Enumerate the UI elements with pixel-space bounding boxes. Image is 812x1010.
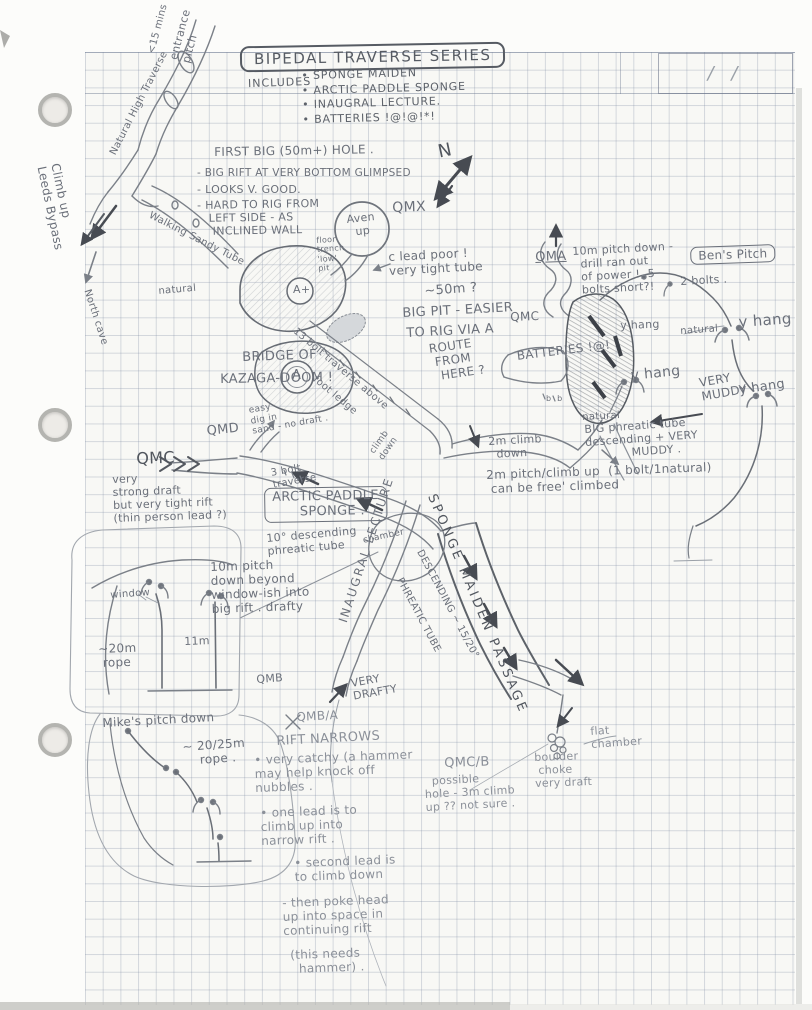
annotation-natural-right-1: natural (680, 323, 719, 337)
annotation-natural-top: natural (158, 283, 197, 298)
annotation-two-m-climb: 2m climb down (488, 433, 543, 462)
annotation-north-arrow-label: N (436, 139, 454, 163)
annotation-flat-chamber: flat chamber (590, 722, 643, 751)
annotation-qmd: QMD (206, 421, 240, 440)
annotation-bens-pitch: Ben's Pitch (690, 244, 776, 265)
annotation-qma: QMA (535, 249, 567, 265)
annotation-rift-note-2: • one lead is to climb up into narrow ri… (260, 803, 358, 849)
annotation-big-pit-4: ROUTE FROM HERE ? (428, 335, 486, 384)
annotation-rift-note-4: - then poke head up into space in contin… (282, 892, 390, 938)
annotation-big-pit-2: BIG PIT - EASIER (402, 300, 513, 321)
annotation-layer: entrance pitch<15 minsNatural High Trave… (0, 0, 812, 1010)
annotation-first-big-hole-note-1: - BIG RIFT AT VERY BOTTOM GLIMPSED (197, 167, 411, 179)
annotation-floor-trench-pit: floor trench 'low' pit (316, 234, 346, 274)
includes-list: • SPONGE MAIDEN• ARCTIC PADDLE SPONGE• I… (301, 65, 466, 127)
annotation-pitch-10m-window: 10m pitch down beyond window-ish into bi… (210, 557, 310, 617)
annotation-boulder-choke: boulder choke very draft (534, 750, 592, 791)
annotation-rift-note-3: • second lead is to climb down (294, 852, 396, 884)
annotation-qmd-note: easy dig in sand - no draft . (248, 393, 329, 438)
annotation-climb-down-rot: climb down (368, 429, 400, 462)
annotation-first-big-hole-title: FIRST BIG (50m+) HOLE . (214, 142, 374, 159)
annotation-y-hang-2: y hang (738, 310, 792, 331)
annotation-rift-note-1: • very catchy (a hammer may help knock o… (254, 747, 414, 795)
annotation-mikes-rope: ~ 20/25m rope . (182, 736, 246, 769)
annotation-natural-high-traverse: Natural High Traverse (108, 50, 171, 158)
annotation-qmb-a: QMB/A (296, 708, 338, 724)
annotation-qmx: QMX (392, 199, 426, 217)
annotation-entrance-time: <15 mins (146, 3, 171, 55)
annotation-rift-narrows: RIFT NARROWS (276, 729, 380, 750)
annotation-first-big-hole-note-3: - HARD TO RIG FROM LEFT SIDE - AS INCLIN… (197, 198, 320, 239)
annotation-y-hang-1: y hang (620, 319, 660, 333)
annotation-two-m-pitch: 2m pitch/climb up (1 bolt/1natural) can … (486, 460, 712, 496)
annotation-mikes-pitch: Mike's pitch down (102, 710, 215, 730)
annotation-batteries-label: BATTERIES !@! (516, 338, 611, 364)
annotation-climb-up-leeds-bypass: Climb up Leeds Bypass (34, 162, 79, 251)
annotation-eleven-m: 11m (184, 635, 210, 649)
annotation-two-bolts: 2 bolts . (680, 274, 728, 289)
annotation-north-cave: North cave (81, 288, 110, 347)
annotation-c-lead-poor: c lead poor ! very tight tube (388, 245, 483, 278)
annotation-qmc-b-note: possible hole - 3m climb up ?? not sure … (424, 771, 516, 815)
annotation-a-plus-label: A+ (293, 284, 310, 297)
annotation-y-hang-3: y hang (630, 363, 681, 385)
annotation-first-big-hole-note-2: - LOOKS V. GOOD. (197, 184, 301, 197)
annotation-qmc-b: QMC/B (444, 754, 490, 771)
annotation-aven-up: Aven up (346, 211, 377, 240)
annotation-very-drafty: VERY DRAFTY (350, 670, 398, 703)
annotation-descending-10: 10° descending phreatic tube (266, 525, 358, 559)
annotation-qmc-left: QMC (136, 449, 175, 469)
annotation-rope-20m: ~20m rope (98, 641, 137, 671)
annotation-rift-note-5: (this needs hammer) . (290, 945, 365, 976)
annotation-qmb: QMB (256, 672, 283, 687)
annotation-big-pit-1: ~50m ? (424, 280, 478, 299)
annotation-b-marks: b b (546, 394, 562, 403)
annotation-qmc-left-note: very strong draft but very tight rift (t… (112, 470, 227, 526)
annotation-qmc-right: QMC (510, 309, 540, 324)
annotation-bridge-of: BRIDGE OF (242, 347, 317, 365)
annotation-window: window (110, 587, 150, 602)
annotation-entrance-pitch: entrance pitch (168, 8, 206, 64)
annotation-big-phreatic: BIG phreatic tube descending + VERY MUDD… (584, 416, 699, 463)
annotation-qma-note: 10m pitch down - drill ran out of power … (572, 241, 676, 298)
